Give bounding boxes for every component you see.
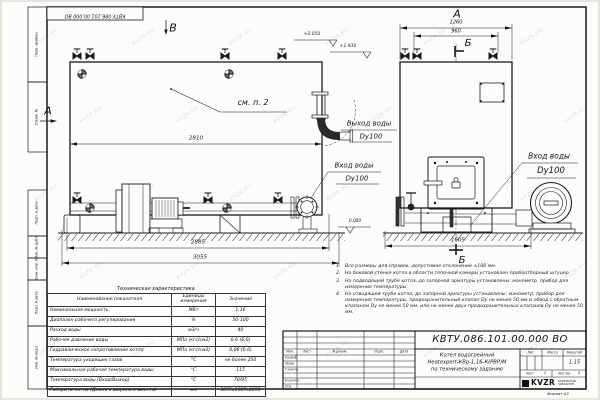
tech-table-row: Рабочее давление водыМПа (кгс/см2)0,6 (6… — [48, 337, 266, 347]
tech-table-cell: % — [172, 317, 216, 327]
stamp-row-razrab: Разраб. — [285, 356, 298, 359]
tech-table-cell: 40 — [216, 327, 266, 337]
tech-table-cell: 50-100 — [216, 317, 266, 327]
dim-1260: 1260 — [450, 21, 463, 26]
stamp-scale-label: Масштаб — [567, 351, 582, 354]
margin-label-podp-data-2: Подп. и дата — [35, 291, 38, 314]
note-item: 3.На подводящей трубе котла, до запорной… — [336, 279, 584, 291]
margin-label-inv-dubl: Инв. № дубл. — [35, 235, 38, 258]
tech-table-row: Диапазон рабочего регулирования%50-100 — [48, 317, 266, 327]
note-number: 4. — [336, 292, 345, 316]
tech-table-cell: МПа (кгс/см2) — [172, 347, 216, 357]
stamp-scale-value: 1:15 — [569, 361, 580, 366]
stamp-col-izm: Изм. — [286, 350, 294, 353]
tech-table-cell: 3055х1605х2050 — [216, 387, 266, 397]
tech-table-cell: мм — [172, 387, 216, 397]
tech-table-cell: °С — [172, 367, 216, 377]
notes-block: 1.Все размеры для справок, допустимое от… — [336, 264, 584, 317]
note-number: 1. — [336, 264, 345, 270]
callout-see-note: см. п. 2 — [238, 99, 269, 107]
tech-table-cell: °С — [172, 377, 216, 387]
stamp-sheet-label: Лист — [526, 372, 534, 375]
tech-table-cell: Максимальная рабочая температура воды — [48, 367, 172, 377]
margin-label-vzam-inv: Взам. инв. № — [35, 257, 38, 280]
inlet-water-side-dy: Dy100 — [537, 167, 565, 176]
note-number: 3. — [336, 279, 345, 291]
note-text: На подводящей трубе котла, до запорной а… — [345, 279, 584, 291]
format-label: Формат А3 — [547, 392, 569, 396]
tech-table-cell: Значение — [216, 294, 266, 307]
tech-table-cell: Единицы измерения — [172, 294, 216, 307]
tech-table: Наименование показателяЕдиницы измерения… — [47, 293, 266, 397]
drawing-sheet: KVZR.RUKVZR.RUKVZR.RUKVZR.RUKVZR.RUKVZR.… — [0, 0, 600, 400]
elevation-0000: 0.000 — [349, 219, 361, 223]
tech-table-cell: не более 250 — [216, 357, 266, 367]
tech-table-row: Температура воды (Вход/Выход)°С70/95 — [48, 377, 266, 387]
kvzr-logo-text: KVZR — [531, 379, 555, 387]
stamp-name-line3: по техническому заданию — [431, 367, 503, 372]
note-text: На боковой стенке котла в области топочн… — [345, 271, 569, 277]
kvzr-org-name: КОТЕЛЬНЫЙ ЗАВОД РЭП — [558, 380, 576, 386]
tech-table-row: Номинальная мощностьМВт1,16 — [48, 307, 266, 317]
stamp-col-data: Дата — [400, 350, 408, 353]
note-item: 1.Все размеры для справок, допустимое от… — [336, 264, 584, 270]
margin-label-inv-podl: Инв. № подл. — [35, 345, 38, 368]
tech-table-cell: 115 — [216, 367, 266, 377]
note-number: 2. — [336, 271, 345, 277]
tech-table-row: Габариты котла (Длина х ширина х высота)… — [48, 387, 266, 397]
stamp-col-podp: Подп. — [374, 350, 384, 353]
tech-table-cell: Диапазон рабочего регулирования — [48, 317, 172, 327]
stamp-sheets-value: 2 — [578, 372, 580, 376]
tech-table-title: Техническая характеристика — [117, 286, 195, 292]
tech-table-cell: м3/ч — [172, 327, 216, 337]
stamp-row-prov: Пров. — [285, 362, 295, 365]
stamp-row-tkontr: Т.контр. — [285, 368, 299, 371]
inlet-water-front-label: Вход воды — [334, 163, 373, 170]
tech-table-cell: 70/95 — [216, 377, 266, 387]
note-text: Все размеры для справок, допустимое откл… — [345, 264, 496, 270]
stamp-sheets-label: Листов — [558, 372, 570, 375]
dim-960: 960 — [451, 29, 461, 34]
dim-3055: 3055 — [193, 255, 207, 261]
dim-2885: 2885 — [191, 240, 205, 246]
tech-table-cell: Рабочее давление воды — [48, 337, 172, 347]
tech-table-row: Максимальная рабочая температура воды°С1… — [48, 367, 266, 377]
tech-table-cell: Расход воды — [48, 327, 172, 337]
tech-table-cell: Температура воды (Вход/Выход) — [48, 377, 172, 387]
stamp-doc-number: КВТУ.086.101.00.000 ВО — [432, 335, 568, 345]
stamp-sheet-value: 1 — [544, 372, 546, 376]
view-b-label: В — [169, 23, 177, 34]
margin-label-sprav: Справ. № — [35, 109, 38, 126]
tech-table-cell: °С — [172, 357, 216, 367]
dim-1605: 1605 — [451, 238, 465, 244]
view-a-top-label: А — [453, 9, 461, 20]
view-a-left-label: А — [44, 106, 52, 117]
doc-number-top: КВТУ.086.101.00.000 ВО — [65, 11, 126, 16]
tech-table-cell: 1,16 — [216, 307, 266, 317]
tech-table-row: Расход водым3/ч40 — [48, 327, 266, 337]
stamp-col-list: Лист — [303, 350, 311, 353]
tech-table-cell: Номинальная мощность — [48, 307, 172, 317]
tech-table-cell: Габариты котла (Длина х ширина х высота) — [48, 387, 172, 397]
side-view — [385, 24, 578, 255]
tech-table-row: Гидравлическое сопротивление котлаМПа (к… — [48, 347, 266, 357]
note-item: 2.На боковой стенке котла в области топо… — [336, 271, 584, 277]
tech-table-cell: Температура уходящих газов — [48, 357, 172, 367]
front-view — [40, 20, 397, 266]
note-item: 4.На отводящей трубе котла, до запорной … — [336, 292, 584, 316]
inlet-water-side-label: Вход воды — [528, 152, 570, 160]
tech-table-cell: Гидравлическое сопротивление котла — [48, 347, 172, 357]
stamp-name-line2: Heatexpert-КВр-1,16-К(РВР)М — [428, 360, 507, 365]
stamp-name-line1: Котел водогрейный — [440, 353, 494, 358]
tech-table-cell: Наименование показателя — [48, 294, 172, 307]
outlet-water-label: Выход воды — [347, 121, 392, 128]
kvzr-org-line2: ЗАВОД РЭП — [558, 383, 576, 386]
tech-table-cell: МВт — [172, 307, 216, 317]
inlet-water-front-dy: Dy100 — [346, 175, 369, 182]
tech-table-cell: 0,06 (0,6) — [216, 347, 266, 357]
margin-label-podp-data-1: Подп. и дата — [35, 201, 38, 224]
margin-label-perv-primen: Перв. примен. — [35, 31, 38, 56]
stamp-mass-label: Масса — [547, 351, 557, 354]
stamp-row-utv: Утв. — [285, 385, 292, 388]
elevation-1930: +1.930 — [340, 45, 357, 50]
dim-2810: 2810 — [189, 136, 203, 142]
tech-table-header-row: Наименование показателяЕдиницы измерения… — [48, 294, 266, 307]
stamp-lit-label: Лит. — [527, 351, 534, 354]
elevation-2050: +2.050 — [304, 33, 321, 38]
stamp-col-dokum: N докум. — [333, 350, 348, 353]
outlet-water-dy: Dy100 — [360, 133, 383, 140]
section-b-top-label: Б — [465, 39, 472, 49]
tech-table-cell: 0,6 (6,0) — [216, 337, 266, 347]
tech-table-cell: МПа (кгс/см2) — [172, 337, 216, 347]
note-text: На отводящей трубе котла, до запорной ар… — [345, 292, 584, 316]
kvzr-logo-icon — [522, 380, 529, 387]
stamp-row-nkontr: Н.контр. — [285, 379, 300, 382]
tech-table-row: Температура уходящих газов°Сне более 250 — [48, 357, 266, 367]
ground-hatching — [58, 233, 583, 241]
